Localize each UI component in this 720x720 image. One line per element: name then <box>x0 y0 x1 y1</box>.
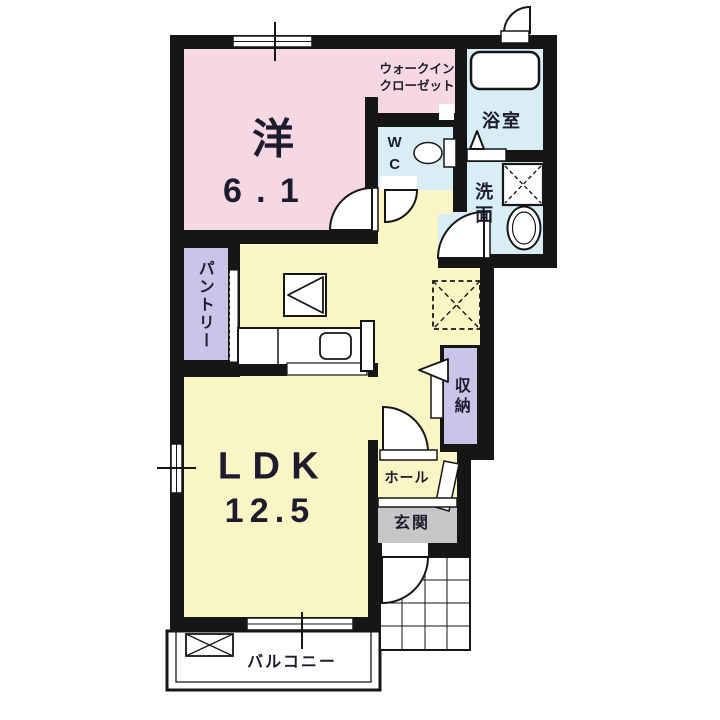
balcony-label: バルコニー <box>247 652 337 674</box>
floor-bedroom-wic-opening <box>365 49 378 97</box>
walk-in-closet-label: ウォークイン クローゼット <box>379 61 454 95</box>
kitchen-counter-return <box>361 321 374 371</box>
exterior-door-swing <box>504 7 530 33</box>
bedroom-size-label: 6.1 <box>223 169 313 215</box>
kitchen-sink-icon <box>320 333 351 359</box>
floor-plan: 洋 6.1 ウォークイン クローゼット WC 浴室 洗面 LDK 12.5 パン… <box>0 0 720 720</box>
bathtub-icon <box>471 52 539 89</box>
entrance-step <box>378 498 457 507</box>
floor-corridor-wide <box>378 268 480 345</box>
hall-label: ホール <box>385 469 430 488</box>
exterior-door-leaf <box>501 31 529 43</box>
bath-threshold <box>467 149 506 161</box>
storage-label: 収納 <box>449 377 471 417</box>
kitchen-counter-base <box>287 363 367 375</box>
bathroom-label: 浴室 <box>482 109 522 133</box>
pantry-label: パントリー <box>193 260 215 350</box>
toilet-bowl-icon <box>414 143 442 164</box>
entrance-label: 玄関 <box>394 513 430 535</box>
front-door-opening <box>382 543 428 557</box>
bedroom-type-label: 洋 <box>252 112 294 169</box>
ldk-size-label: 12.5 <box>225 489 316 535</box>
wic-wall-niche <box>439 104 454 120</box>
washroom-label: 洗面 <box>471 182 495 228</box>
pantry-door-panel <box>229 270 238 362</box>
storage-door-leaf <box>431 374 443 418</box>
wc-label: WC <box>384 134 404 178</box>
wc-door-opening <box>380 176 417 190</box>
toilet-tank-icon <box>444 139 456 167</box>
ldk-label: LDK <box>218 441 330 492</box>
hall-door-leaf <box>380 450 437 460</box>
pantry-door <box>229 270 238 362</box>
floor-plan-drawing <box>0 0 720 720</box>
